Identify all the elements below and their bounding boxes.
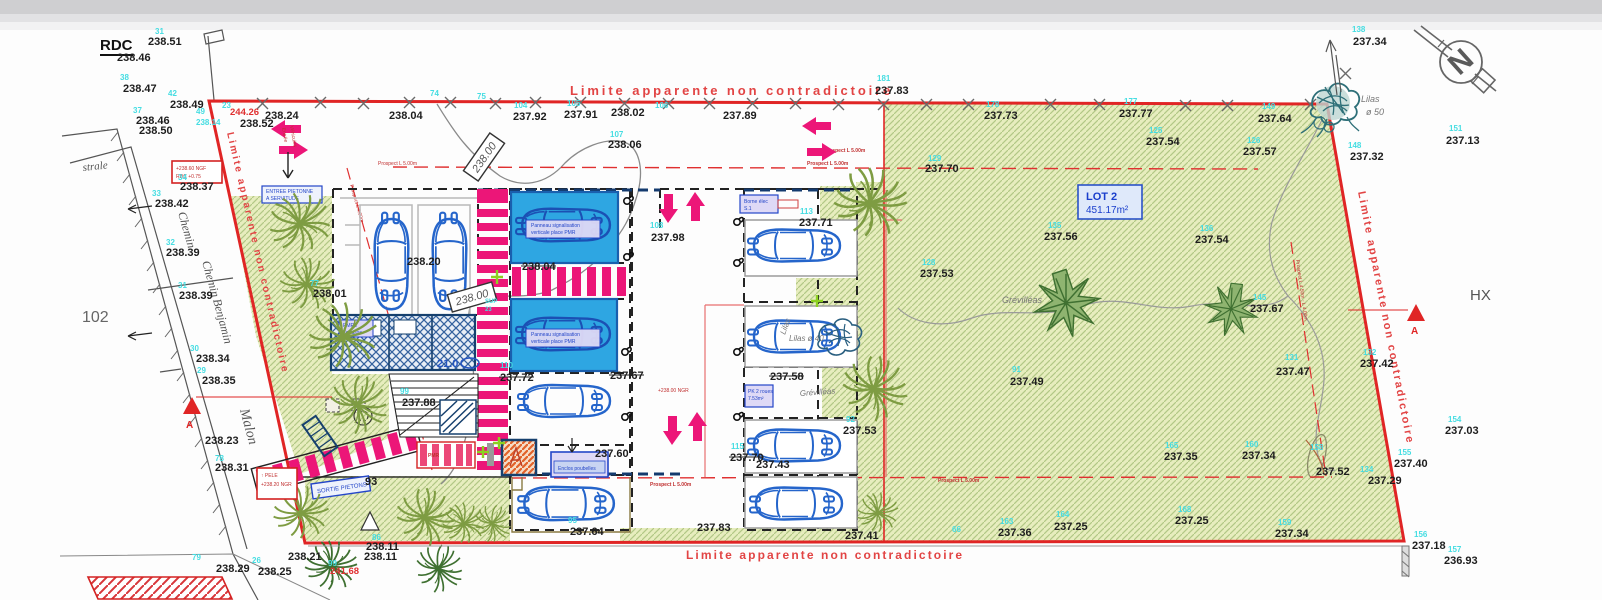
svg-text:237.54: 237.54 xyxy=(1195,234,1230,246)
svg-text:154: 154 xyxy=(1448,415,1462,424)
svg-text:237.77: 237.77 xyxy=(1119,108,1153,120)
svg-text:181: 181 xyxy=(877,74,891,83)
svg-text:238.25: 238.25 xyxy=(258,566,292,578)
svg-text:238.01: 238.01 xyxy=(313,288,347,300)
svg-text:PK 2 roues: PK 2 roues xyxy=(748,389,773,395)
svg-text:237.64: 237.64 xyxy=(1258,113,1293,125)
svg-text:237.73: 237.73 xyxy=(984,110,1018,122)
svg-text:237.64: 237.64 xyxy=(570,526,605,538)
svg-text:ø 50: ø 50 xyxy=(1366,107,1384,117)
svg-text:129: 129 xyxy=(928,154,942,163)
svg-text:451.17m²: 451.17m² xyxy=(1086,205,1129,216)
svg-text:237.03: 237.03 xyxy=(1445,425,1479,437)
svg-text:237.25: 237.25 xyxy=(1175,515,1209,527)
svg-text:↑ PELE: ↑ PELE xyxy=(261,473,278,479)
svg-text:23: 23 xyxy=(485,307,492,313)
svg-text:115: 115 xyxy=(731,442,744,451)
svg-text:238.14: 238.14 xyxy=(196,118,221,127)
svg-text:30: 30 xyxy=(190,344,199,353)
svg-text:237.98: 237.98 xyxy=(651,232,685,244)
svg-text:A: A xyxy=(1411,326,1418,337)
svg-text:79: 79 xyxy=(192,553,201,562)
svg-text:238.35: 238.35 xyxy=(202,375,236,387)
svg-text:Panneau signalisation: Panneau signalisation xyxy=(531,332,580,338)
svg-text:HX: HX xyxy=(1470,287,1491,304)
svg-text:238.23: 238.23 xyxy=(205,435,239,447)
svg-text:238.11: 238.11 xyxy=(364,551,397,563)
svg-text:Grévilléas: Grévilléas xyxy=(1002,295,1043,305)
svg-text:Enclos poubelles: Enclos poubelles xyxy=(558,466,596,472)
svg-text:237.34: 237.34 xyxy=(1242,450,1277,462)
svg-text:237.13: 237.13 xyxy=(1446,135,1480,147)
svg-text:237.57: 237.57 xyxy=(1243,146,1277,158)
svg-text:37: 37 xyxy=(133,106,142,115)
svg-text:237.54: 237.54 xyxy=(1146,136,1181,148)
svg-text:A: A xyxy=(186,420,193,431)
svg-text:237.49: 237.49 xyxy=(1010,376,1044,388)
svg-text:145: 145 xyxy=(1253,293,1267,302)
svg-text:91: 91 xyxy=(1012,365,1021,374)
svg-text:107: 107 xyxy=(610,130,624,139)
svg-text:159: 159 xyxy=(1278,518,1292,527)
svg-text:42: 42 xyxy=(168,89,177,98)
svg-text:149: 149 xyxy=(1262,102,1276,111)
svg-text:S.1: S.1 xyxy=(744,206,752,212)
svg-text:177: 177 xyxy=(1124,97,1138,106)
svg-text:33: 33 xyxy=(152,189,161,198)
svg-text:ENTREE PIETONNE: ENTREE PIETONNE xyxy=(266,189,314,195)
svg-text:Prospect L 5.00m: Prospect L 5.00m xyxy=(807,161,849,167)
svg-text:+238.00 NGR: +238.00 NGR xyxy=(658,388,689,394)
svg-text:21.0: 21.0 xyxy=(437,358,458,370)
svg-text:+238.60 NGF: +238.60 NGF xyxy=(176,166,206,172)
svg-text:135: 135 xyxy=(1048,221,1062,230)
svg-text:237.41: 237.41 xyxy=(845,530,879,542)
svg-text:106: 106 xyxy=(655,101,669,110)
svg-text:verticale place PMR: verticale place PMR xyxy=(531,339,576,345)
svg-text:238.20: 238.20 xyxy=(407,256,441,268)
svg-text:77: 77 xyxy=(310,279,319,288)
svg-text:34: 34 xyxy=(178,173,187,182)
svg-text:238.06: 238.06 xyxy=(608,139,642,151)
svg-text:131: 131 xyxy=(1285,353,1299,362)
svg-text:74: 74 xyxy=(430,89,439,98)
svg-text:Panneau signalisation: Panneau signalisation xyxy=(531,223,580,229)
svg-text:237.42: 237.42 xyxy=(1360,358,1394,370)
svg-text:Limite apparente non contradic: Limite apparente non contradictoire xyxy=(570,83,893,98)
svg-text:95: 95 xyxy=(568,516,577,525)
svg-text:31: 31 xyxy=(155,27,164,36)
svg-text:237.56: 237.56 xyxy=(1044,231,1078,243)
svg-text:238.46: 238.46 xyxy=(117,52,151,64)
svg-text:155: 155 xyxy=(1398,448,1412,457)
svg-text:151: 151 xyxy=(1449,124,1463,133)
svg-text:238.47: 238.47 xyxy=(123,83,157,95)
svg-text:164: 164 xyxy=(1056,510,1070,519)
svg-text:237.53: 237.53 xyxy=(843,425,877,437)
svg-text:238.50: 238.50 xyxy=(139,125,173,137)
svg-text:238.21: 238.21 xyxy=(288,551,322,563)
svg-text:verticale place PMR: verticale place PMR xyxy=(531,230,576,236)
svg-text:7.53m²: 7.53m² xyxy=(748,396,764,402)
svg-text:238.34: 238.34 xyxy=(196,353,231,365)
svg-text:178: 178 xyxy=(986,100,1000,109)
svg-text:237.92: 237.92 xyxy=(513,111,547,123)
svg-text:237.71: 237.71 xyxy=(799,217,833,229)
svg-text:238.39: 238.39 xyxy=(166,247,200,259)
svg-text:160: 160 xyxy=(1245,440,1259,449)
svg-text:168: 168 xyxy=(1178,505,1192,514)
svg-text:237.70: 237.70 xyxy=(925,163,959,175)
svg-text:237.89: 237.89 xyxy=(723,110,757,122)
svg-text:134: 134 xyxy=(1360,465,1374,474)
svg-text:31: 31 xyxy=(178,281,187,290)
svg-text:238.39: 238.39 xyxy=(179,290,213,302)
svg-text:237.25: 237.25 xyxy=(1054,521,1088,533)
svg-text:104: 104 xyxy=(514,101,528,110)
svg-text:238.29: 238.29 xyxy=(216,563,250,575)
svg-text:Prospect L 5.00m: Prospect L 5.00m xyxy=(378,161,417,167)
svg-text:49: 49 xyxy=(196,107,205,116)
svg-text:126: 126 xyxy=(1247,136,1261,145)
svg-text:Lilas: Lilas xyxy=(1361,94,1380,104)
svg-text:125: 125 xyxy=(1149,126,1163,135)
svg-text:237.83: 237.83 xyxy=(875,85,909,97)
svg-text:99: 99 xyxy=(400,387,409,396)
svg-text:Borne élec: Borne élec xyxy=(744,199,768,205)
svg-text:237.29: 237.29 xyxy=(1368,475,1402,487)
svg-text:237.52: 237.52 xyxy=(1316,466,1350,478)
svg-text:237.67: 237.67 xyxy=(1250,303,1284,315)
svg-text:238.31: 238.31 xyxy=(215,462,249,474)
svg-text:32: 32 xyxy=(166,238,175,247)
svg-text:Prospect L 5.00m: Prospect L 5.00m xyxy=(650,482,692,488)
svg-text:93: 93 xyxy=(365,476,377,488)
svg-text:238.02: 238.02 xyxy=(611,107,645,119)
svg-text:102: 102 xyxy=(82,309,109,326)
svg-text:238.04: 238.04 xyxy=(389,110,424,122)
svg-text:237.18: 237.18 xyxy=(1412,540,1446,552)
svg-text:237.47: 237.47 xyxy=(1276,366,1310,378)
svg-text:Limite apparente non contradic: Limite apparente non contradictoire xyxy=(686,548,964,562)
svg-text:163: 163 xyxy=(1000,517,1014,526)
svg-text:148: 148 xyxy=(1348,141,1362,150)
svg-text:237.58: 237.58 xyxy=(770,371,804,383)
svg-text:237.60: 237.60 xyxy=(595,448,629,460)
svg-text:237.83: 237.83 xyxy=(697,522,731,534)
svg-text:237.53: 237.53 xyxy=(920,268,954,280)
svg-text:237.40: 237.40 xyxy=(1394,458,1428,470)
svg-text:237.34: 237.34 xyxy=(1353,36,1388,48)
svg-text:156: 156 xyxy=(1414,530,1428,539)
svg-text:110: 110 xyxy=(500,361,513,370)
svg-text:105: 105 xyxy=(567,99,581,108)
svg-text:29: 29 xyxy=(197,366,206,375)
svg-text:237.36: 237.36 xyxy=(998,527,1032,539)
svg-text:165: 165 xyxy=(1165,441,1179,450)
svg-text:66: 66 xyxy=(952,525,961,534)
svg-text:237.72: 237.72 xyxy=(500,372,534,384)
svg-text:SUP: SUP xyxy=(485,299,497,305)
svg-text:38: 38 xyxy=(120,73,129,82)
svg-text:92: 92 xyxy=(846,415,855,424)
svg-text:136: 136 xyxy=(1200,224,1214,233)
svg-text:PMR: PMR xyxy=(428,453,440,459)
svg-text:113: 113 xyxy=(800,207,813,216)
svg-text:237.32: 237.32 xyxy=(1350,151,1384,163)
svg-text:244.26: 244.26 xyxy=(230,107,259,118)
svg-text:237.34: 237.34 xyxy=(1275,528,1310,540)
svg-text:75: 75 xyxy=(477,92,486,101)
svg-text:108: 108 xyxy=(650,221,664,230)
svg-text:128: 128 xyxy=(922,258,936,267)
svg-text:237.43: 237.43 xyxy=(756,459,790,471)
svg-text:132: 132 xyxy=(1363,348,1377,357)
svg-text:157: 157 xyxy=(1448,545,1462,554)
svg-text:237.67: 237.67 xyxy=(610,370,644,382)
svg-text:238.52: 238.52 xyxy=(240,118,274,130)
svg-text:26: 26 xyxy=(252,556,261,565)
svg-text:241.68: 241.68 xyxy=(330,566,359,577)
svg-text:237.88: 237.88 xyxy=(402,397,436,409)
svg-text:238.37: 238.37 xyxy=(180,181,214,193)
svg-text:138: 138 xyxy=(1352,25,1366,34)
svg-text:238.51: 238.51 xyxy=(148,36,182,48)
svg-text:LOT 2: LOT 2 xyxy=(1086,191,1117,203)
svg-text:236.93: 236.93 xyxy=(1444,555,1478,567)
svg-text:237.35: 237.35 xyxy=(1164,451,1198,463)
svg-text:+238.20 NGR: +238.20 NGR xyxy=(261,482,292,488)
svg-text:238.04: 238.04 xyxy=(522,261,557,273)
svg-text:237.91: 237.91 xyxy=(564,109,598,121)
svg-text:Prospect L 5.00m: Prospect L 5.00m xyxy=(938,478,980,484)
svg-text:158: 158 xyxy=(1310,443,1324,452)
svg-text:238.42: 238.42 xyxy=(155,198,189,210)
